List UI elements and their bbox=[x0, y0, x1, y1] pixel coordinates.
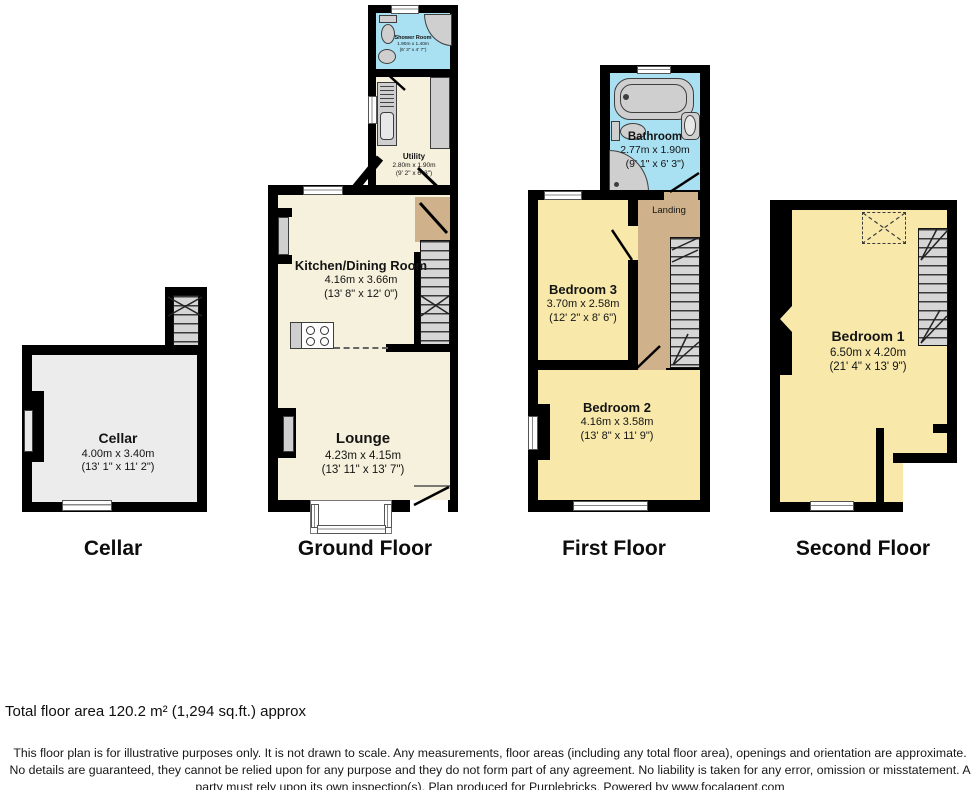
bedroom1-label: Bedroom 1 6.50m x 4.20m (21' 4" x 13' 9"… bbox=[798, 328, 938, 374]
cellar-light-well bbox=[24, 410, 33, 452]
bathroom-door-opening bbox=[664, 192, 698, 200]
room-size-imperial: (13' 8" x 11' 9") bbox=[547, 430, 687, 444]
room-size-imperial: (12' 2" x 8' 6") bbox=[518, 312, 648, 326]
landing-label: Landing bbox=[643, 205, 695, 217]
total-floor-area-text: Total floor area 120.2 m² (1,294 sq.ft.)… bbox=[5, 703, 306, 720]
room-name: Bedroom 2 bbox=[547, 400, 687, 416]
front-door-opening bbox=[410, 500, 448, 512]
tap-icon bbox=[623, 94, 629, 100]
second-left-thick-wall bbox=[770, 200, 792, 375]
room-size-metric: 2.80m x 1.90m bbox=[385, 162, 443, 170]
bedroom2-door-opening bbox=[638, 360, 666, 370]
kitchen-alcove bbox=[278, 217, 289, 255]
cellar-title: Cellar bbox=[43, 537, 183, 561]
bathtub-inner bbox=[620, 84, 687, 113]
shower-drain bbox=[614, 182, 619, 187]
bedroom3-window bbox=[544, 191, 582, 200]
room-size-imperial: (13' 1" x 11' 2") bbox=[48, 461, 188, 475]
room-size-metric: 6.50m x 4.20m bbox=[798, 346, 938, 360]
inner-wall-stub bbox=[876, 428, 884, 502]
room-name: Shower Room bbox=[380, 35, 446, 42]
cellar-window bbox=[62, 500, 112, 511]
room-name: Kitchen/Dining Room bbox=[286, 258, 436, 274]
room-size-imperial: (21' 4" x 13' 9") bbox=[798, 360, 938, 374]
bedroom2-window bbox=[573, 501, 648, 511]
ground-floor-title: Ground Floor bbox=[275, 537, 455, 561]
room-name: Bedroom 3 bbox=[518, 282, 648, 298]
cellar-room bbox=[22, 345, 207, 512]
room-size-metric: 4.16m x 3.66m bbox=[286, 274, 436, 288]
toilet-cistern-icon bbox=[379, 15, 397, 23]
utility-window bbox=[368, 96, 377, 124]
kitchen-lounge-wall bbox=[386, 344, 450, 352]
room-name: Cellar bbox=[48, 430, 188, 448]
kitchen-window bbox=[303, 186, 343, 195]
open-plan-divider bbox=[334, 347, 388, 349]
bay-window-front bbox=[317, 525, 386, 534]
stove-icon bbox=[301, 322, 334, 349]
shower-room-label: Shower Room 1.90m x 1.40m (6' 3" x 4' 7"… bbox=[380, 35, 446, 54]
room-name: Bedroom 1 bbox=[798, 328, 938, 346]
first-floor-title: First Floor bbox=[534, 537, 694, 561]
first-floor-stairs bbox=[670, 237, 700, 368]
shower-room-window bbox=[391, 5, 419, 14]
bay-window bbox=[310, 500, 392, 534]
bedroom3-room bbox=[538, 200, 628, 360]
burner-icon bbox=[320, 337, 329, 346]
room-size-imperial: (13' 8" x 12' 0") bbox=[286, 288, 436, 302]
kitchen-label: Kitchen/Dining Room 4.16m x 3.66m (13' 8… bbox=[286, 258, 436, 302]
cutout-wall bbox=[893, 453, 957, 463]
burner-icon bbox=[306, 326, 315, 335]
room-name: Bathroom bbox=[604, 130, 706, 144]
kitchen-chimney-breast bbox=[278, 208, 292, 217]
exterior-cutout bbox=[903, 462, 957, 512]
room-size-imperial: (6' 3" x 4' 7") bbox=[380, 48, 446, 54]
room-size-metric: 3.70m x 2.58m bbox=[518, 298, 648, 312]
cellar-chimney-breast bbox=[32, 391, 44, 462]
room-size-imperial: (13' 11" x 13' 7") bbox=[290, 463, 436, 477]
utility-label: Utility 2.80m x 1.90m (9' 2" x 6' 3") bbox=[385, 152, 443, 178]
room-size-metric: 4.00m x 3.40m bbox=[48, 448, 188, 462]
bedroom2-label: Bedroom 2 4.16m x 3.58m (13' 8" x 11' 9"… bbox=[547, 400, 687, 444]
room-size-metric: 2.77m x 1.90m bbox=[604, 144, 706, 157]
room-name: Landing bbox=[643, 205, 695, 217]
lounge-label: Lounge 4.23m x 4.15m (13' 11" x 13' 7") bbox=[290, 430, 436, 478]
room-name: Lounge bbox=[290, 430, 436, 449]
cellar-room-label: Cellar 4.00m x 3.40m (13' 1" x 11' 2") bbox=[48, 430, 188, 475]
floor-plan: Cellar 4.00m x 3.40m (13' 1" x 11' 2") bbox=[0, 0, 980, 790]
ground-stair-landing bbox=[415, 197, 450, 242]
burner-icon bbox=[320, 326, 329, 335]
room-size-metric: 4.16m x 3.58m bbox=[547, 416, 687, 430]
room-size-imperial: (9' 1" x 6' 3") bbox=[604, 158, 706, 171]
bedroom3-door-opening bbox=[628, 226, 638, 260]
utility-cupboard-icon bbox=[430, 77, 450, 149]
room-size-imperial: (9' 2" x 6' 3") bbox=[385, 170, 443, 178]
second-floor-title: Second Floor bbox=[773, 537, 953, 561]
utility-sink-icon bbox=[380, 112, 394, 140]
disclaimer-text: This floor plan is for illustrative purp… bbox=[0, 745, 980, 790]
bathroom-label: Bathroom 2.77m x 1.90m (9' 1" x 6' 3") bbox=[604, 130, 706, 171]
burner-icon bbox=[306, 337, 315, 346]
bedroom2-side-window bbox=[528, 416, 538, 450]
bedroom1-window bbox=[810, 501, 854, 511]
bedroom3-label: Bedroom 3 3.70m x 2.58m (12' 2" x 8' 6") bbox=[518, 282, 648, 326]
room-size-metric: 4.23m x 4.15m bbox=[290, 449, 436, 463]
skylight-icon bbox=[862, 212, 906, 244]
drainer-icon bbox=[380, 86, 394, 110]
bathroom-window bbox=[637, 66, 671, 74]
right-wall-stub bbox=[933, 424, 957, 433]
room-name: Utility bbox=[385, 152, 443, 162]
wall-notch bbox=[780, 306, 792, 332]
